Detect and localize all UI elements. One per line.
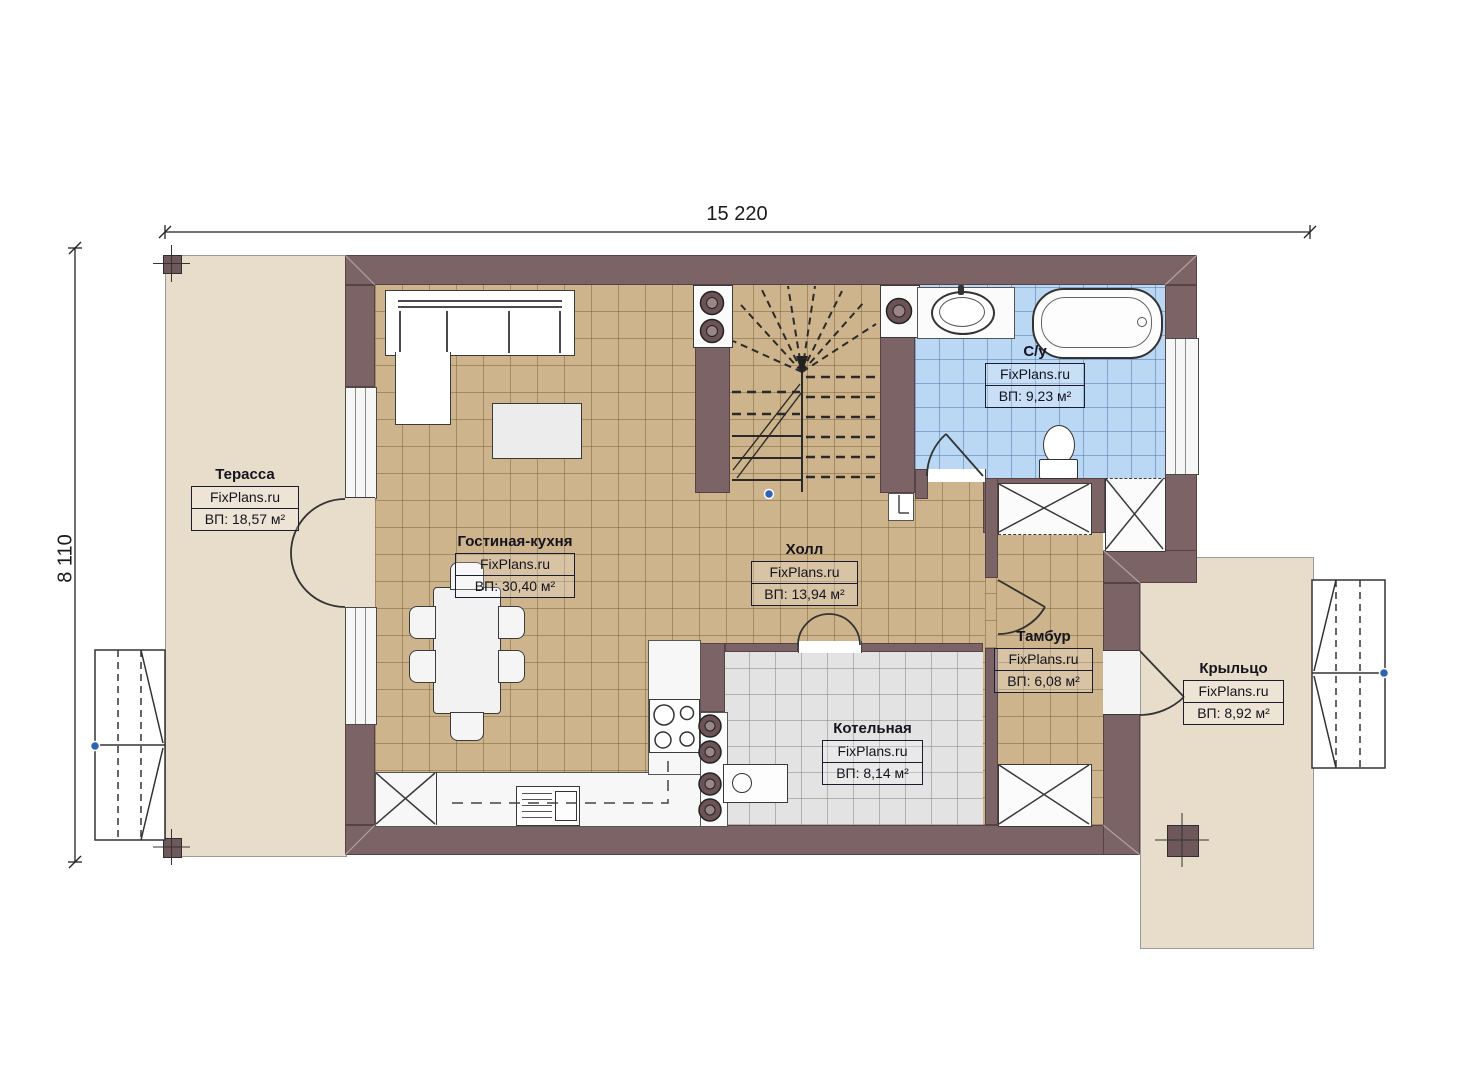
room-info-box: FixPlans.ru ВП: 9,23 м² xyxy=(985,363,1085,408)
room-area: ВП: 9,23 м² xyxy=(986,385,1084,407)
room-name: Холл xyxy=(751,541,858,559)
chair xyxy=(409,606,436,639)
room-label-bathroom: С/у FixPlans.ru ВП: 9,23 м² xyxy=(985,343,1085,408)
sofa-back-line xyxy=(398,300,562,302)
window-glass xyxy=(346,608,376,724)
watermark-text: FixPlans.ru xyxy=(986,364,1084,385)
entrance-door-opening xyxy=(1103,650,1140,715)
sofa-seat-divider xyxy=(508,311,510,353)
terrace-floor xyxy=(165,255,347,857)
stove xyxy=(649,699,700,753)
vent-shaft-c xyxy=(998,764,1092,827)
window-glass xyxy=(346,388,376,498)
room-info-box: FixPlans.ru ВП: 6,08 м² xyxy=(994,648,1093,693)
bath-sink-basin xyxy=(939,297,985,327)
bath-tap-icon xyxy=(958,285,964,295)
bathtub-inner xyxy=(1041,297,1152,348)
room-label-living-kitchen: Гостиная-кухня FixPlans.ru ВП: 30,40 м² xyxy=(455,533,575,598)
dimension-height: 8 110 xyxy=(55,509,78,609)
room-name: Тамбур xyxy=(994,628,1093,646)
kitchen-sink xyxy=(516,786,580,826)
room-info-box: FixPlans.ru ВП: 18,57 м² xyxy=(191,486,299,531)
stair-flue-block-left xyxy=(693,285,733,348)
stair-exit-notch xyxy=(888,493,914,521)
porch-column xyxy=(1167,825,1199,857)
watermark-text: FixPlans.ru xyxy=(1184,681,1283,702)
kitchen-shaft-square xyxy=(375,772,437,825)
watermark-text: FixPlans.ru xyxy=(823,741,922,762)
sofa-chaise xyxy=(395,352,451,425)
toilet-tank xyxy=(1039,459,1078,479)
wall-bottom xyxy=(345,825,1140,855)
room-name: С/у xyxy=(985,343,1085,361)
wall-boiler-top-left xyxy=(725,643,798,652)
wall-top xyxy=(345,255,1197,285)
wall-stair-left xyxy=(695,345,730,493)
sofa-back-line xyxy=(398,306,562,308)
watermark-text: FixPlans.ru xyxy=(752,562,857,583)
room-info-box: FixPlans.ru ВП: 13,94 м² xyxy=(751,561,858,606)
room-area: ВП: 8,14 м² xyxy=(823,762,922,784)
wall-left-upper xyxy=(345,285,375,387)
boiler-unit xyxy=(723,764,788,803)
room-area: ВП: 8,92 м² xyxy=(1184,702,1283,724)
room-name: Крыльцо xyxy=(1183,660,1284,678)
watermark-text: FixPlans.ru xyxy=(456,554,574,575)
window-left-1 xyxy=(345,387,377,499)
room-name: Терасса xyxy=(191,466,299,484)
boiler-dial xyxy=(732,773,752,793)
watermark-text: FixPlans.ru xyxy=(192,487,298,508)
wall-jog xyxy=(1103,550,1197,583)
terrace-column-top xyxy=(163,255,182,274)
wall-stair-right xyxy=(880,335,915,493)
window-glass xyxy=(1166,339,1198,474)
room-area: ВП: 6,08 м² xyxy=(995,670,1092,692)
floor-plan: Терасса FixPlans.ru ВП: 18,57 м² Гостина… xyxy=(0,0,1473,1080)
room-label-tambour: Тамбур FixPlans.ru ВП: 6,08 м² xyxy=(994,628,1093,693)
room-info-box: FixPlans.ru ВП: 8,14 м² xyxy=(822,740,923,785)
porch-floor xyxy=(1140,557,1314,949)
watermark-text: FixPlans.ru xyxy=(995,649,1092,670)
wall-tambour-east xyxy=(1103,583,1140,855)
room-area: ВП: 18,57 м² xyxy=(192,508,298,530)
room-area: ВП: 30,40 м² xyxy=(456,575,574,597)
sofa-seat-divider xyxy=(446,311,448,353)
wall-boiler-top-right xyxy=(860,643,983,652)
vent-shaft-a xyxy=(998,483,1092,535)
room-info-box: FixPlans.ru ВП: 30,40 м² xyxy=(455,553,575,598)
bathroom-door-threshold xyxy=(927,469,986,482)
wall-hall-tambour-upper xyxy=(985,478,998,578)
terrace-door-opening xyxy=(345,497,375,609)
dimension-width: 15 220 xyxy=(637,203,837,226)
room-label-porch: Крыльцо FixPlans.ru ВП: 8,92 м² xyxy=(1183,660,1284,725)
room-label-terrace: Терасса FixPlans.ru ВП: 18,57 м² xyxy=(191,466,299,531)
bathtub-drain xyxy=(1137,317,1147,327)
sofa-armrest-line xyxy=(559,311,561,353)
window-left-2 xyxy=(345,607,377,725)
room-info-box: FixPlans.ru ВП: 8,92 м² xyxy=(1183,680,1284,725)
stair-flue-block-right xyxy=(880,285,920,338)
chair xyxy=(498,650,525,683)
dining-table xyxy=(433,587,501,714)
room-name: Гостиная-кухня xyxy=(455,533,575,551)
kitchen-sink-grate xyxy=(522,792,552,818)
room-label-hall: Холл FixPlans.ru ВП: 13,94 м² xyxy=(751,541,858,606)
chair xyxy=(450,712,484,741)
terrace-column-bottom xyxy=(163,838,182,858)
porch-steps xyxy=(1312,580,1385,768)
vent-shaft-b xyxy=(1105,478,1166,552)
room-area: ВП: 13,94 м² xyxy=(752,583,857,605)
terrace-steps xyxy=(95,650,165,840)
kitchen-sink-bowl xyxy=(555,791,577,821)
chair xyxy=(409,650,436,683)
chair xyxy=(498,606,525,639)
window-right-bathroom xyxy=(1165,338,1199,475)
room-name: Котельная xyxy=(822,720,923,738)
sofa xyxy=(385,290,575,356)
wall-left-lower xyxy=(345,723,375,825)
coffee-table xyxy=(492,403,582,459)
boiler-door-threshold xyxy=(798,641,862,653)
room-label-boiler: Котельная FixPlans.ru ВП: 8,14 м² xyxy=(822,720,923,785)
sofa-armrest-line xyxy=(399,311,401,353)
